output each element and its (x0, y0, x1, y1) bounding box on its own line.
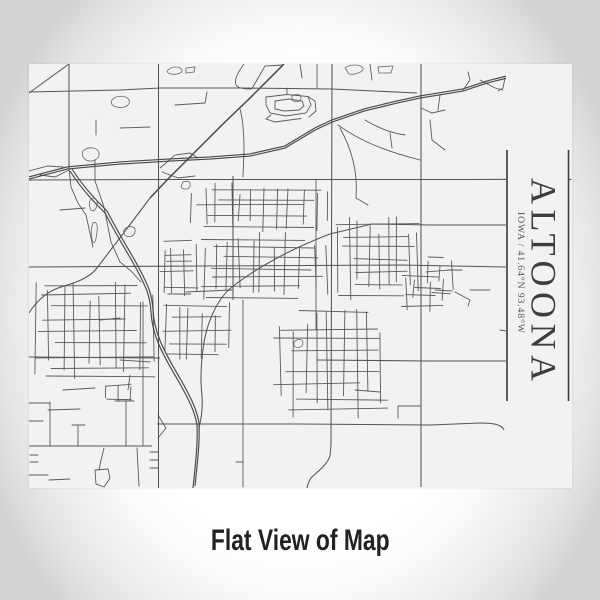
svg-text:IOWA / 41.64°N 93.48°W: IOWA / 41.64°N 93.48°W (515, 212, 526, 334)
